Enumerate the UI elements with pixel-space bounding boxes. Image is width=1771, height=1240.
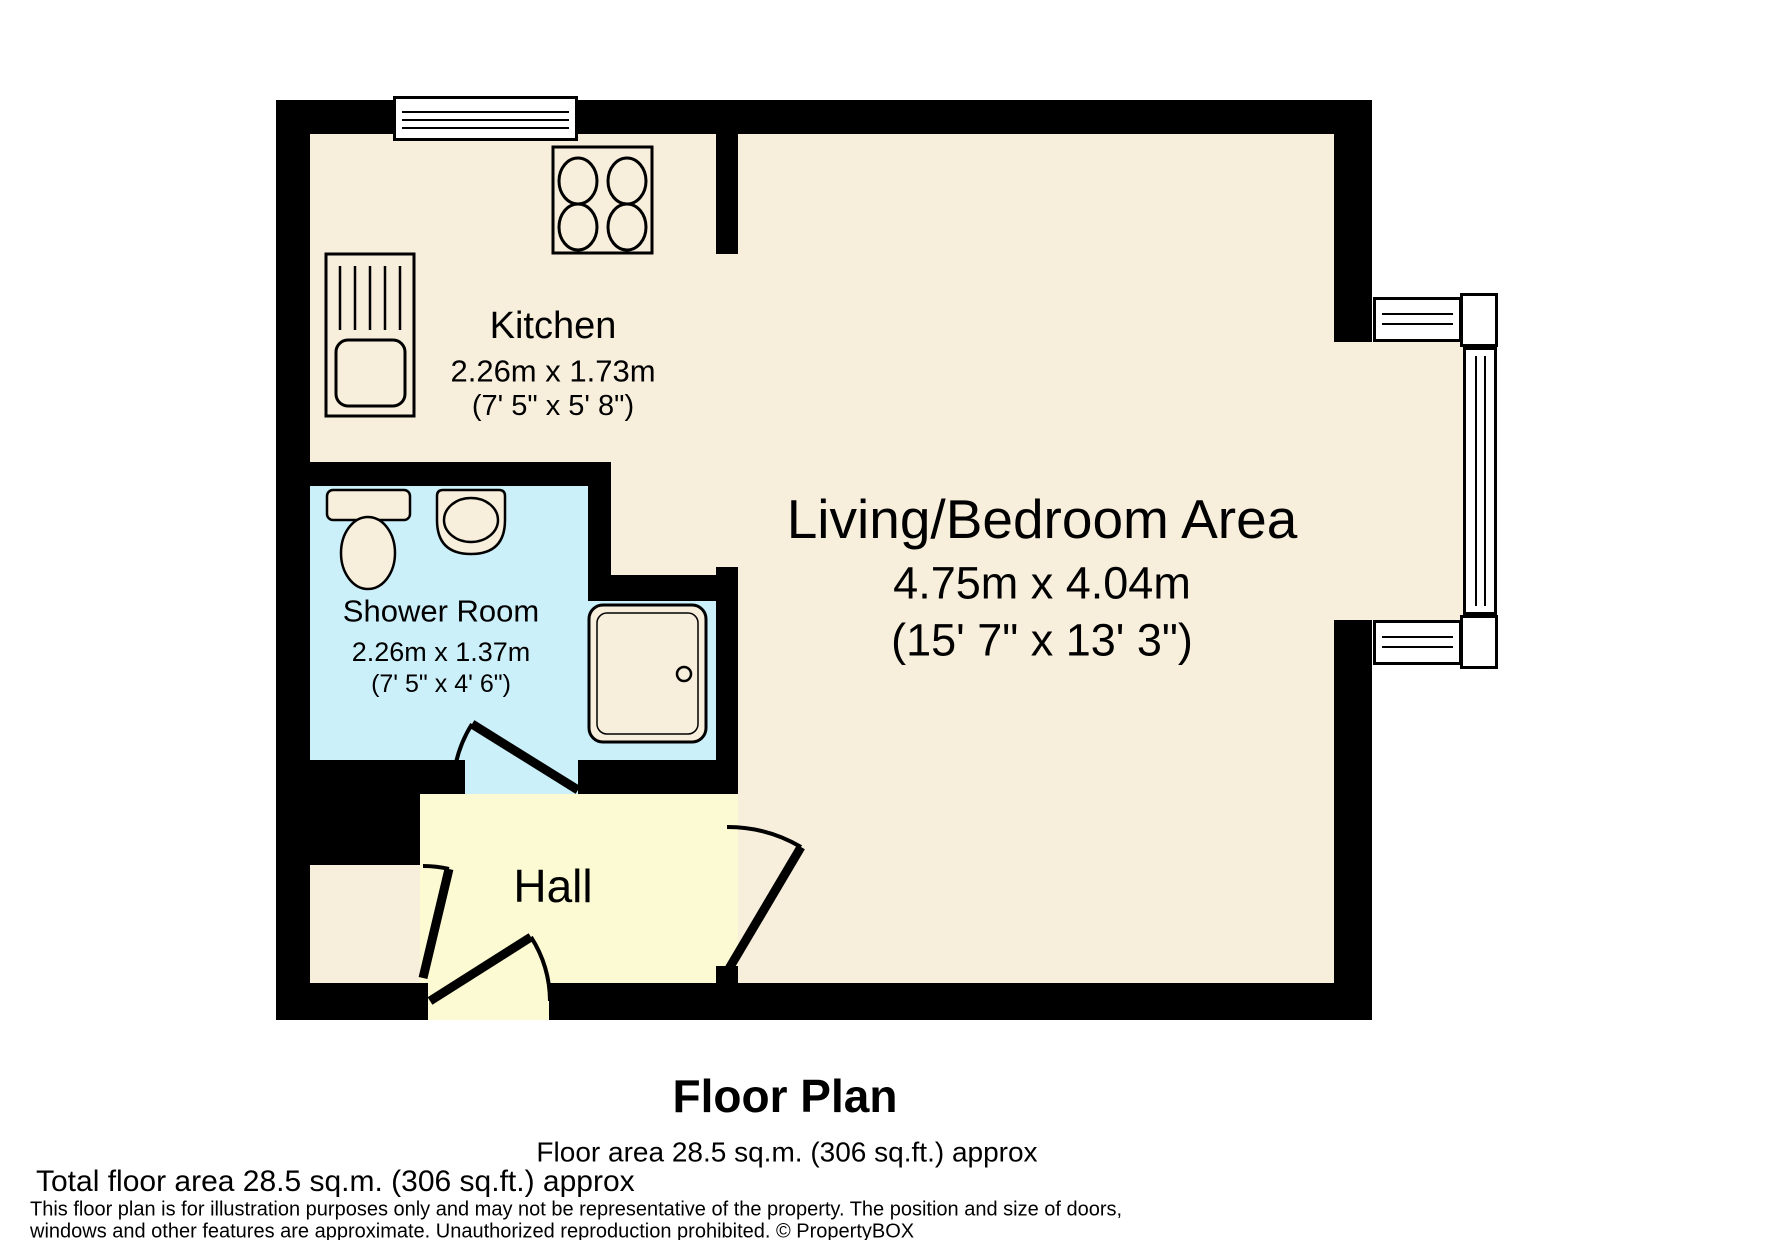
wall-right-lower (1334, 620, 1372, 1020)
hall-label: Hall (513, 862, 592, 910)
bay-window-frame-line (1475, 356, 1477, 606)
total-floor-area-text: Total floor area 28.5 sq.m. (306 sq.ft.)… (36, 1165, 635, 1199)
wall-kitchen-living-stub (716, 134, 738, 254)
shower-cubicle-floor (588, 601, 716, 760)
page-title: Floor Plan (673, 1072, 898, 1120)
wall-living-divider (716, 567, 738, 794)
floor-area-text: Floor area 28.5 sq.m. (306 sq.ft.) appro… (536, 1137, 1037, 1166)
kitchen-dims-imperial: (7' 5" x 5' 8") (472, 391, 634, 421)
bay-window-frame-line (1382, 646, 1453, 648)
wall-bottom-left (276, 983, 428, 1020)
living-bedroom-label: Living/Bedroom Area (787, 491, 1298, 549)
kitchen-label: Kitchen (490, 307, 617, 347)
wall-hall-closet-block (310, 760, 420, 865)
bay-window-floor (1334, 342, 1463, 620)
shower-room-dims-metric: 2.26m x 1.37m (352, 638, 531, 666)
disclaimer-line-1: This floor plan is for illustration purp… (30, 1199, 1122, 1222)
kitchen-dims-metric: 2.26m x 1.73m (450, 356, 655, 389)
bay-window-frame-line (1484, 356, 1486, 606)
bay-window-bottom-pane (1373, 620, 1462, 665)
bay-window-side-pane (1463, 347, 1497, 615)
kitchen-window-frame-line (402, 119, 569, 121)
shower-doorway-floor (465, 760, 578, 794)
kitchen-window-frame-line (402, 127, 569, 129)
wall-right-upper (1334, 100, 1372, 342)
disclaimer-line-2: windows and other features are approxima… (30, 1221, 914, 1240)
floor-plan-page: Kitchen 2.26m x 1.73m (7' 5" x 5' 8") Sh… (0, 0, 1771, 1240)
bay-window-corner-bottom (1460, 615, 1498, 669)
shower-room-label: Shower Room (343, 596, 539, 629)
wall-divider-bottom-stub (716, 966, 738, 986)
living-bedroom-dims-metric: 4.75m x 4.04m (893, 559, 1191, 606)
wall-bottom-right (549, 983, 1372, 1020)
shower-room-dims-imperial: (7' 5" x 4' 6") (371, 671, 511, 697)
wall-left (276, 100, 310, 1020)
living-bedroom-dims-imperial: (15' 7" x 13' 3") (891, 616, 1193, 663)
wall-kitchen-shower (310, 462, 611, 486)
bay-window-frame-line (1382, 636, 1453, 638)
bay-window-top-pane (1373, 297, 1462, 342)
kitchen-window-frame-line (402, 111, 569, 113)
wall-shower-bottom-right (578, 760, 716, 794)
entrance-doorway-floor (428, 983, 549, 1020)
wall-shower-pocket-vertical (588, 486, 611, 585)
closet-floor (310, 865, 420, 983)
kitchen-window (393, 96, 578, 141)
bay-window-corner-top (1460, 293, 1498, 347)
bay-window-frame-line (1382, 313, 1453, 315)
bay-window-frame-line (1382, 323, 1453, 325)
